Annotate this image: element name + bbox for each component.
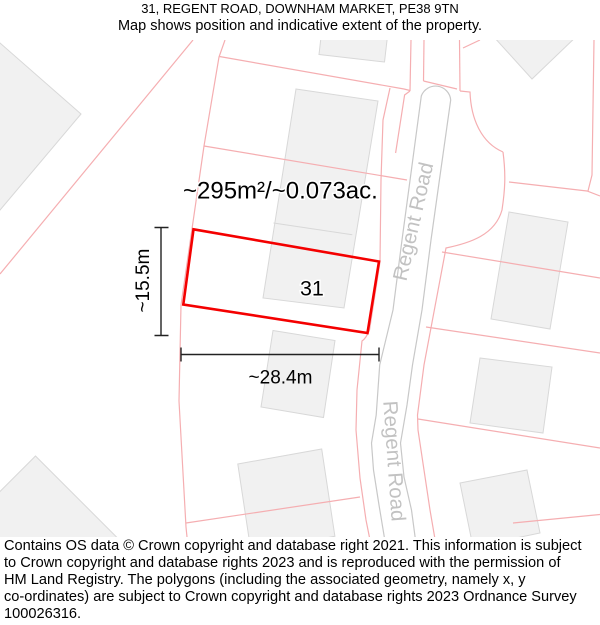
svg-text:~15.5m: ~15.5m: [133, 249, 154, 313]
svg-text:31: 31: [300, 277, 324, 301]
svg-text:~28.4m: ~28.4m: [249, 368, 313, 389]
svg-text:~295m²/~0.073ac.: ~295m²/~0.073ac.: [183, 178, 378, 205]
